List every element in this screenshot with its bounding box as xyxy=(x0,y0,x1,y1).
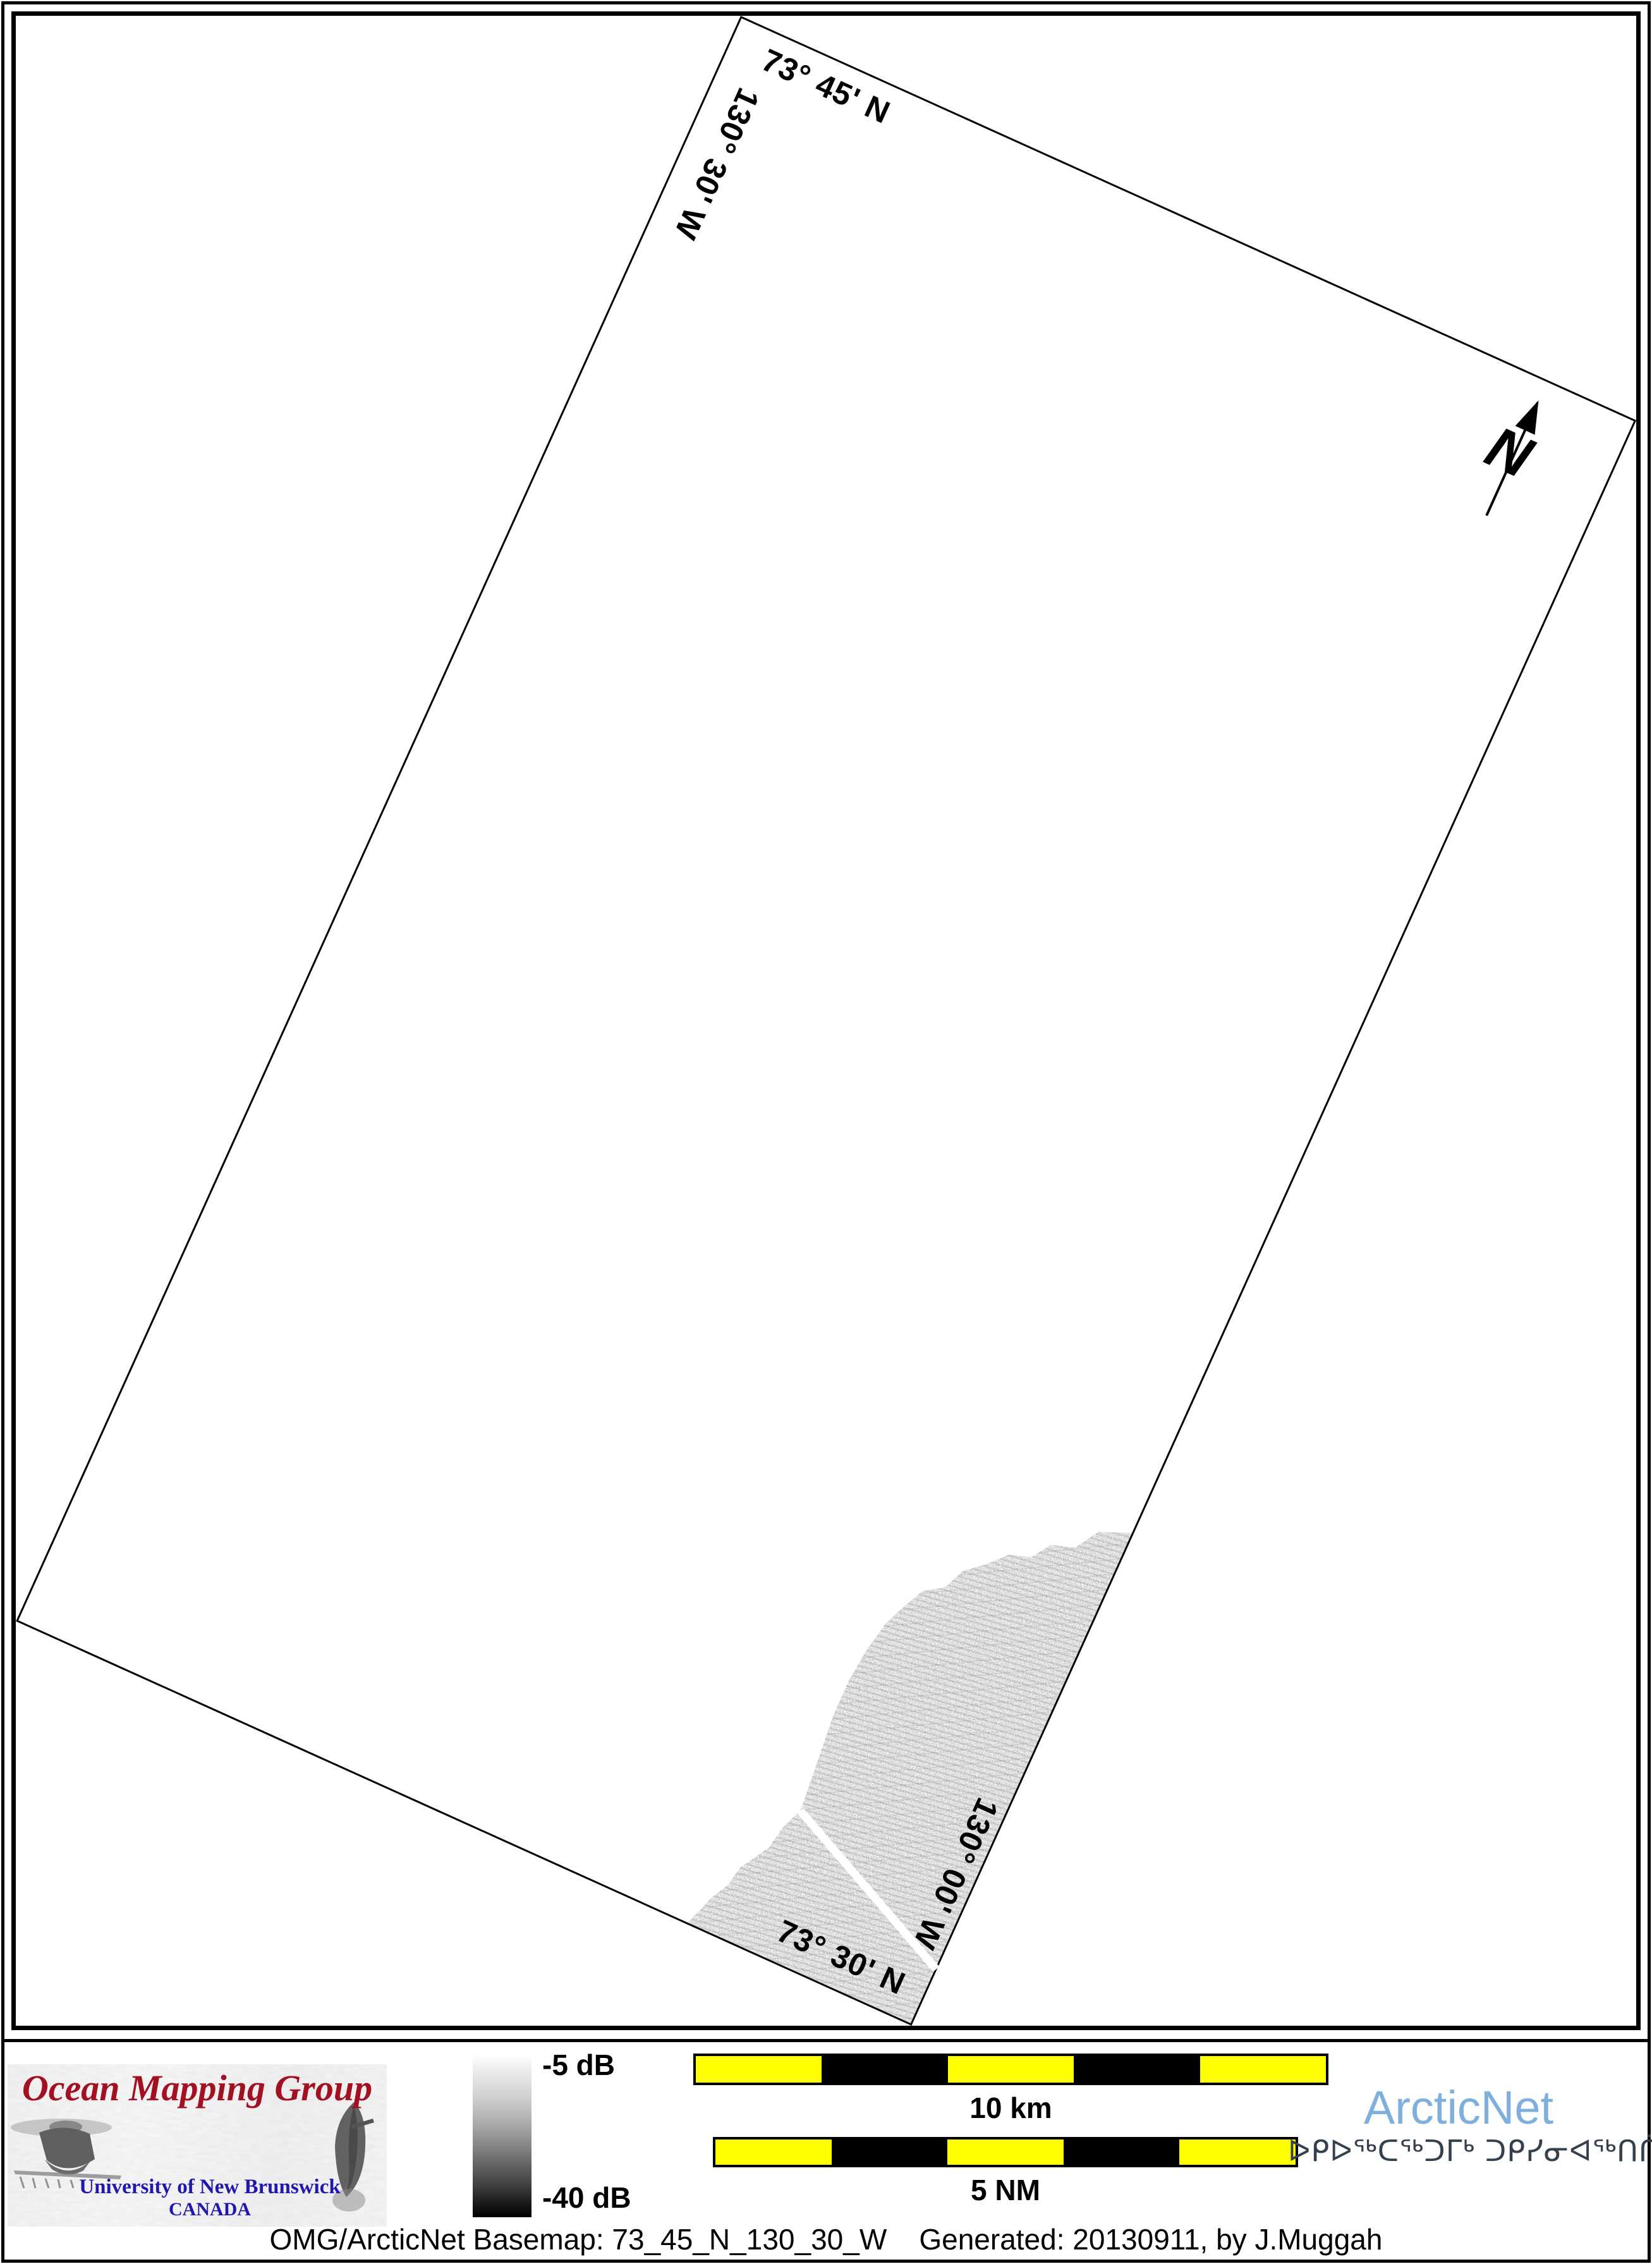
scalebar-segment-black xyxy=(1064,2139,1180,2165)
scalebar-nm xyxy=(713,2137,1298,2167)
longitude-label-left: 130° 30' W xyxy=(667,83,767,245)
map-neatline: 73° 45' N 130° 30' W 73° 30' N 130° 00' … xyxy=(16,16,1636,2026)
map-panel: 73° 45' N 130° 30' W 73° 30' N 130° 00' … xyxy=(11,11,1641,2030)
scalebar-segment-yellow xyxy=(696,2056,822,2083)
colorbar-max-label: -5 dB xyxy=(542,2048,615,2082)
backscatter-colorbar xyxy=(473,2054,531,2217)
basemap-page: 73° 45' N 130° 30' W 73° 30' N 130° 00' … xyxy=(0,0,1652,2264)
colorbar-min-label: -40 dB xyxy=(542,2181,631,2215)
omg-logo: Ocean Mapping Group University of New Br… xyxy=(8,2064,387,2227)
backscatter-noise xyxy=(18,18,1634,2023)
swath-streaks xyxy=(18,18,1634,2023)
scalebar-segment-yellow xyxy=(1179,2139,1296,2165)
backscatter-swath xyxy=(18,18,1634,2023)
arcticnet-inuktitut: ᐅᑭᐅᖅᑕᖅᑐᒥᒃ ᑐᑭᓯᓂᐊᖅᑎᑏᑦ xyxy=(1288,2134,1652,2168)
scalebar-segment-yellow xyxy=(715,2139,832,2165)
arcticnet-wordmark: ArcticNet xyxy=(1339,2081,1579,2134)
north-arrow: N xyxy=(1459,391,1564,530)
scalebar-nm-label: 5 NM xyxy=(713,2173,1298,2207)
footer-divider xyxy=(4,2039,1648,2042)
scalebar-segment-yellow xyxy=(948,2056,1074,2083)
scalebar-segment-yellow xyxy=(947,2139,1064,2165)
scalebar-km xyxy=(693,2054,1328,2085)
scalebar-segment-black xyxy=(832,2139,948,2165)
omg-logo-country: CANADA xyxy=(33,2199,387,2220)
scalebar-segment-black xyxy=(822,2056,947,2083)
north-letter: N xyxy=(1478,417,1540,487)
map-caption: OMG/ArcticNet Basemap: 73_45_N_130_30_W … xyxy=(0,2222,1652,2256)
scalebar-segment-black xyxy=(1074,2056,1200,2083)
omg-logo-title: Ocean Mapping Group xyxy=(8,2067,387,2109)
scalebar-km-label: 10 km xyxy=(693,2091,1328,2125)
omg-logo-university: University of New Brunswick xyxy=(33,2176,387,2199)
latitude-label-top: 73° 45' N xyxy=(756,42,896,131)
scalebar-segment-yellow xyxy=(1200,2056,1326,2083)
